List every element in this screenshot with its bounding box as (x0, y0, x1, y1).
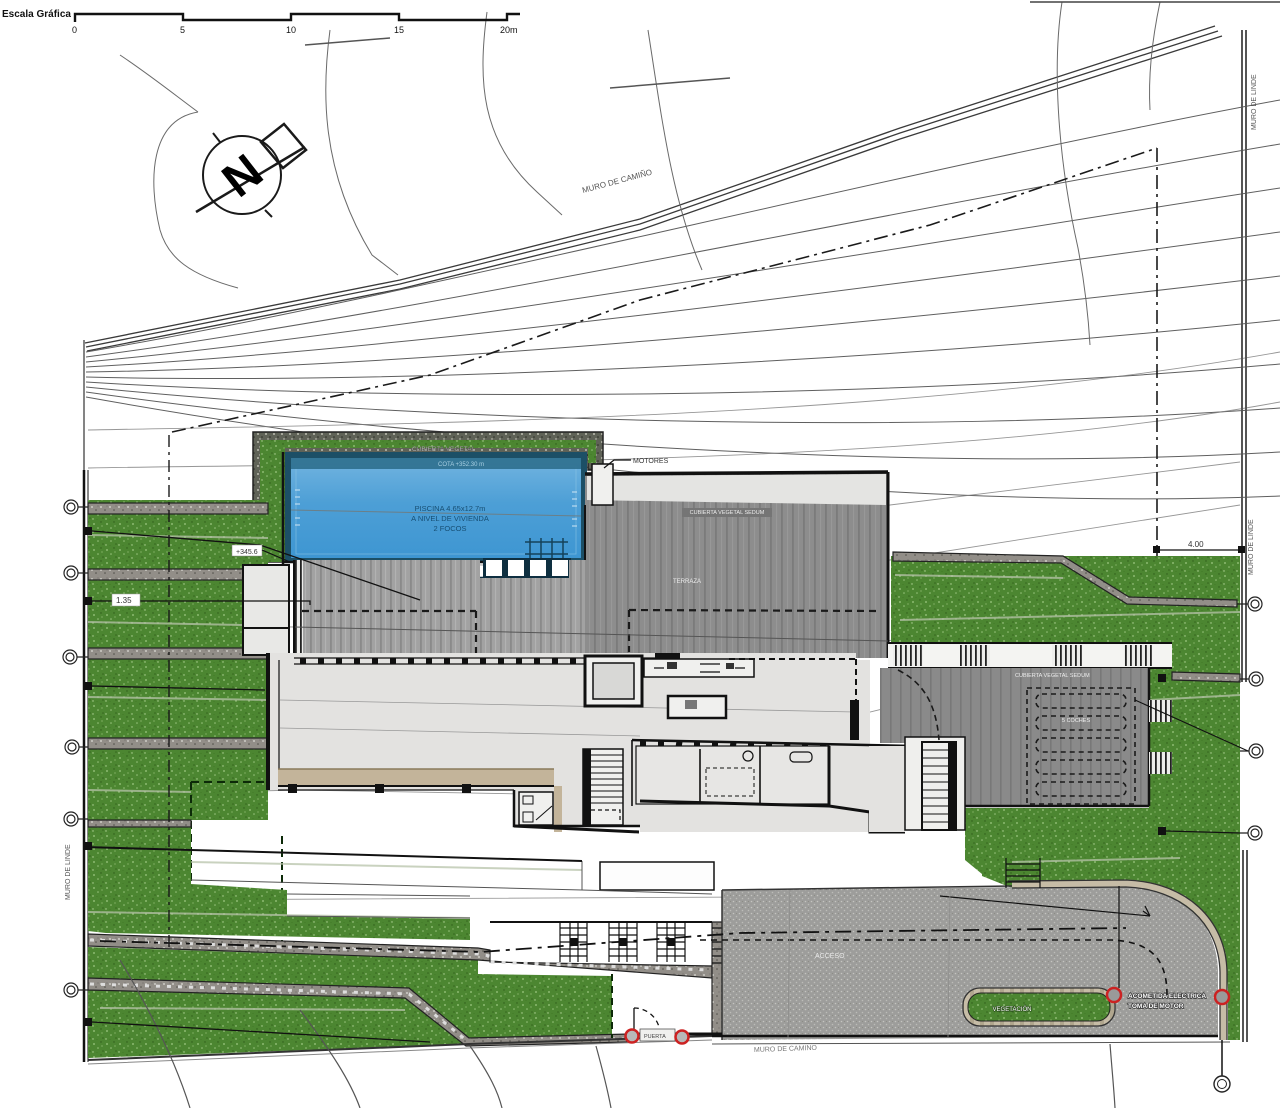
svg-text:COTA +352.30 m: COTA +352.30 m (438, 462, 484, 468)
svg-text:+345.6: +345.6 (236, 549, 258, 556)
svg-text:ACCESO: ACCESO (815, 953, 845, 960)
svg-text:4.00: 4.00 (1188, 540, 1204, 549)
svg-text:10: 10 (286, 25, 296, 35)
svg-text:20m: 20m (500, 25, 518, 35)
svg-text:MURO DE LINDE: MURO DE LINDE (1251, 74, 1258, 130)
svg-text:PUERTA: PUERTA (644, 1034, 666, 1040)
svg-text:5: 5 (180, 25, 185, 35)
svg-text:2 FOCOS: 2 FOCOS (434, 524, 467, 533)
svg-text:0: 0 (72, 25, 77, 35)
svg-text:ACOMETIDA ELECTRICA: ACOMETIDA ELECTRICA (1128, 993, 1206, 1000)
svg-text:MURO DE LINDE: MURO DE LINDE (1248, 519, 1255, 575)
svg-text:TERRAZA: TERRAZA (673, 579, 701, 585)
svg-text:MURO DE LINDE: MURO DE LINDE (65, 844, 72, 900)
svg-text:TOMA DE MOTOR: TOMA DE MOTOR (1128, 1003, 1184, 1010)
svg-text:MOTORES: MOTORES (633, 458, 669, 465)
svg-text:15: 15 (394, 25, 404, 35)
svg-text:CUBIERTA VEGETAL: CUBIERTA VEGETAL (412, 446, 476, 453)
svg-text:CUBIERTA VEGETAL SEDUM: CUBIERTA VEGETAL SEDUM (1015, 673, 1090, 679)
svg-text:VEGETACIÓN: VEGETACIÓN (993, 1006, 1032, 1013)
svg-text:CUBIERTA VEGETAL SEDUM: CUBIERTA VEGETAL SEDUM (690, 510, 765, 516)
svg-text:5 COCHES: 5 COCHES (1062, 718, 1090, 724)
svg-text:1.35: 1.35 (116, 596, 132, 605)
svg-text:A NIVEL DE VIVIENDA: A NIVEL DE VIVIENDA (411, 514, 489, 523)
svg-text:PISCINA 4.65x12.7m: PISCINA 4.65x12.7m (415, 504, 486, 513)
svg-text:Escala Gráfica: Escala Gráfica (2, 9, 71, 20)
